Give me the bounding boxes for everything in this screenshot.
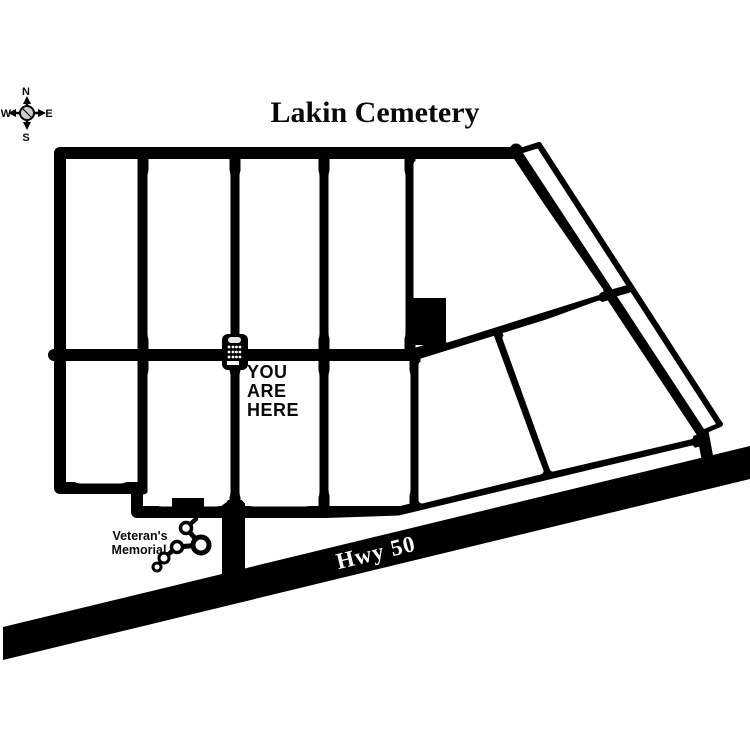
cemetery-map-page: N S W E Lakin Cemetery YOU ARE HERE Vete… (0, 0, 750, 750)
compass-label-s: S (22, 132, 29, 144)
veterans-memorial-line2: Memorial (112, 543, 167, 557)
block-nw-4 (331, 164, 403, 345)
kiosk-base-bar (227, 361, 239, 365)
block-sw-4 (331, 364, 408, 502)
kiosk-top-sign (228, 337, 241, 343)
map-canvas: N S W E Lakin Cemetery YOU ARE HERE Vete… (0, 0, 750, 750)
block-nw-2 (150, 164, 228, 346)
building-east (413, 298, 446, 345)
compass-label-n: N (22, 86, 30, 98)
veterans-memorial-line1: Veteran's (112, 529, 167, 543)
you-are-here-line3: HERE (247, 400, 299, 420)
kiosk-icon (222, 334, 248, 370)
block-sw-1 (69, 364, 132, 481)
block-sw-2 (150, 364, 228, 504)
page-title: Lakin Cemetery (270, 96, 479, 129)
block-nw-1 (69, 164, 132, 346)
compass-label-e: E (45, 108, 52, 120)
compass-rose-icon: N S W E (1, 86, 53, 144)
diagonal-highway-connector (702, 429, 707, 456)
you-are-here-line2: ARE (247, 381, 287, 401)
block-nw-3 (242, 164, 317, 346)
compass-label-w: W (1, 108, 12, 120)
veterans-memorial-label: Veteran's Memorial (112, 529, 168, 557)
building-south (172, 498, 204, 513)
you-are-here-line1: YOU (247, 362, 288, 382)
